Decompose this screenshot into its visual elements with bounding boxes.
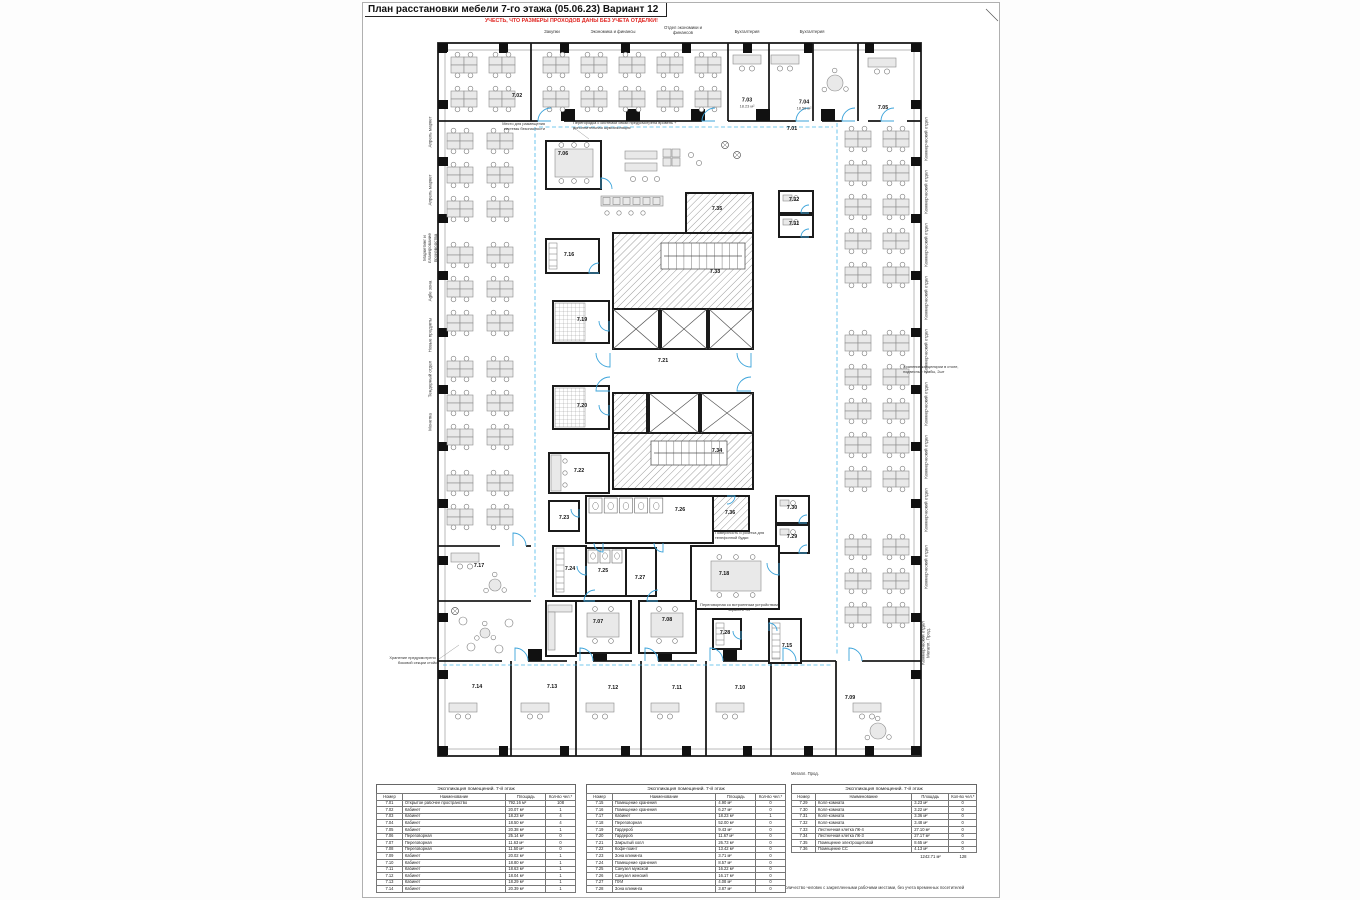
room-label: 7.09	[845, 695, 855, 701]
table-cell: 7.30	[792, 807, 816, 814]
footnote: *Указано количество человек с закрепленн…	[765, 885, 993, 890]
table-cell: Санузел мужской	[612, 866, 715, 873]
room-label: 7.32	[789, 197, 799, 203]
table-row: 7.17Кабинет18.23 м²1	[587, 813, 786, 820]
room-label: 7.29	[787, 534, 797, 540]
table-cell: 0	[756, 820, 786, 827]
drawing-title: План расстановки мебели 7-го этажа (05.0…	[365, 3, 667, 17]
room-label: 7.15	[782, 643, 792, 649]
column-header: Кол-во чел.*	[546, 794, 576, 801]
table-cell: 0	[756, 853, 786, 860]
floor-plan-drawing	[363, 3, 999, 897]
table-cell: 7.32	[792, 820, 816, 827]
table-cell: Помещение хранения	[612, 800, 715, 807]
table-row: 7.36Помещение СС4.13 м²0	[792, 846, 977, 853]
table-row: 7.11Кабинет18.63 м²1	[377, 866, 576, 873]
table-cell: 7.04	[377, 820, 403, 827]
table-title: Экспликация помещений. 7-й этаж	[791, 784, 977, 793]
table-cell: 1	[546, 826, 576, 833]
table-cell: Кабинет	[402, 820, 505, 827]
table-cell: 0	[756, 859, 786, 866]
table-cell: 25.14 м²	[506, 833, 546, 840]
table-cell: 7.36	[792, 846, 816, 853]
dept-label-right: Коммерческий отдел	[923, 435, 928, 478]
table-cell: 13.42 м²	[716, 846, 756, 853]
table-cell: 0	[756, 866, 786, 873]
table-row: 7.21Закрытый холл26.73 м²0	[587, 840, 786, 847]
table-cell: Санузел женский	[612, 873, 715, 880]
table-title: Экспликация помещений. 7-й этаж	[376, 784, 576, 793]
dept-label-left: Новые продукты	[427, 318, 432, 353]
table-row: 7.13Кабинет18.29 м²1	[377, 879, 576, 886]
room-label: 7.14	[472, 684, 482, 690]
explication-table: НомерНаименованиеПлощадьКол-во чел.*7.01…	[376, 793, 576, 893]
table-row: 7.24Помещение хранения8.57 м²0	[587, 859, 786, 866]
dept-label-left: Тендерный отдел	[427, 361, 432, 398]
table-cell: 7.13	[377, 879, 403, 886]
table-cell: Переговорная	[402, 840, 505, 847]
table-cell: 11.67 м²	[716, 833, 756, 840]
table-cell: 1	[546, 859, 576, 866]
plan-annotation: Хранение канцелярии в столе, подвесные т…	[903, 365, 985, 375]
dept-label-right: Коммерческий отдел	[923, 223, 928, 266]
dept-label-top: Бухгалтерия	[712, 29, 782, 34]
table-cell: 18.29 м²	[506, 879, 546, 886]
table-cell: 0	[756, 800, 786, 807]
column-header: Наименование	[402, 794, 505, 801]
plan-annotation: Место для размещения системы безопасност…	[487, 122, 545, 132]
table-cell: 7.06	[377, 833, 403, 840]
table-cell: Кабинет	[402, 879, 505, 886]
table-cell: 7.14	[377, 886, 403, 893]
plan-annotation: Переговорная со встроенным устройством э…	[699, 603, 779, 613]
core-rooms	[546, 141, 813, 663]
table-cell: 7.07	[377, 840, 403, 847]
table-cell: 20.38 м²	[506, 826, 546, 833]
table-row: 7.27ПУИ4.08 м²0	[587, 879, 786, 886]
table-cell: 7.10	[377, 859, 403, 866]
table-cell: Помещение электрощитовой	[816, 840, 912, 847]
table-row: 7.15Помещение хранения4.90 м²0	[587, 800, 786, 807]
plan-annotation: Перегородка с системой связи предусмотре…	[573, 121, 695, 131]
table-cell: 7.05	[377, 826, 403, 833]
dept-label-right: Коммерческий отдел	[923, 545, 928, 588]
column-header: Номер	[377, 794, 403, 801]
table-cell: 108	[546, 800, 576, 807]
table-cell: Кабинет	[402, 826, 505, 833]
room-label: 7.12	[608, 685, 618, 691]
table-cell: 0	[546, 833, 576, 840]
table-cell: 20.02 м²	[506, 853, 546, 860]
table-cell: 1	[546, 866, 576, 873]
table-cell: Колл-комната	[816, 813, 912, 820]
explication-table-2: Экспликация помещений. 7-й этажНомерНаим…	[586, 784, 786, 893]
table-totals: 1242.71 м²128	[791, 854, 977, 859]
table-row: 7.12Кабинет18.04 м²1	[377, 873, 576, 880]
room-label: 7.24	[565, 566, 575, 572]
table-cell: Гардероб	[612, 826, 715, 833]
table-cell: 0	[756, 879, 786, 886]
table-cell: ПУИ	[612, 879, 715, 886]
room-area-label: 18.23 м²	[740, 104, 755, 109]
room-label: 7.25	[598, 568, 608, 574]
table-cell: 27.10 м²	[912, 826, 949, 833]
table-cell: Переговорная	[612, 820, 715, 827]
table-row: 7.07Переговорная11.63 м²0	[377, 840, 576, 847]
table-cell: Кабинет	[402, 866, 505, 873]
table-row: 7.08Переговорная11.50 м²0	[377, 846, 576, 853]
table-cell: 7.33	[792, 826, 816, 833]
table-cell: 16.22 м²	[716, 866, 756, 873]
table-cell: 7.28	[587, 886, 613, 893]
table-cell: 0	[949, 807, 977, 814]
room-label: 7.18	[719, 571, 729, 577]
column-header: Кол-во чел.*	[949, 794, 977, 801]
table-cell: 0	[949, 840, 977, 847]
table-cell: 0	[756, 846, 786, 853]
dept-label-top: Бухгалтерия	[777, 29, 847, 34]
table-cell: 18.50 м²	[506, 820, 546, 827]
table-header-row: НомерНаименованиеПлощадьКол-во чел.*	[587, 794, 786, 801]
table-cell: Кабинет	[402, 807, 505, 814]
plan-annotation: Хранение предусмотрено в боковой секции …	[375, 656, 439, 666]
table-row: 7.20Гардероб11.67 м²0	[587, 833, 786, 840]
table-cell: 7.20	[587, 833, 613, 840]
room-label: 7.20	[577, 403, 587, 409]
table-cell: 3.48 м²	[912, 820, 949, 827]
table-cell: 3.23 м²	[912, 800, 949, 807]
table-row: 7.34Лестничная клетка ЛК-327.17 м²0	[792, 833, 977, 840]
table-row: 7.32Колл-комната3.48 м²0	[792, 820, 977, 827]
table-cell: 0	[756, 833, 786, 840]
table-cell: 8.65 м²	[912, 840, 949, 847]
table-cell: Кабинет	[402, 873, 505, 880]
table-row: 7.35Помещение электрощитовой8.65 м²0	[792, 840, 977, 847]
table-row: 7.05Кабинет20.38 м²1	[377, 826, 576, 833]
table-header-row: НомерНаименованиеПлощадьКол-во чел.*	[792, 794, 977, 801]
table-row: 7.29Колл-комната3.23 м²0	[792, 800, 977, 807]
dept-label-left: Agile зона	[427, 281, 432, 302]
room-label: 7.05	[878, 105, 888, 111]
table-row: 7.16Помещение хранения6.27 м²0	[587, 807, 786, 814]
room-label: 7.13	[547, 684, 557, 690]
dept-label-right: Коммерческий отдел Мегапл. Прод.	[921, 621, 932, 664]
room-label: 7.22	[574, 468, 584, 474]
table-cell: 20.39 м²	[506, 886, 546, 893]
misc-label: Мегапл. Прод.	[791, 771, 819, 776]
room-label: 7.33	[710, 269, 720, 275]
table-cell: 16.17 м²	[716, 873, 756, 880]
table-cell: 7.18	[587, 820, 613, 827]
table-cell: 792.16 м²	[506, 800, 546, 807]
dept-label-top: Экономика и финансы	[578, 29, 648, 34]
table-cell: 0	[546, 846, 576, 853]
room-label: 7.36	[725, 510, 735, 516]
table-cell: 7.27	[587, 879, 613, 886]
table-cell: 11.63 м²	[506, 840, 546, 847]
table-cell: 1	[546, 873, 576, 880]
room-label: 7.19	[577, 317, 587, 323]
table-cell: 3.71 м²	[716, 853, 756, 860]
room-label: 7.31	[789, 221, 799, 227]
table-cell: 3.36 м²	[912, 813, 949, 820]
table-row: 7.33Лестничная клетка ЛК-427.10 м²0	[792, 826, 977, 833]
dept-label-left: Апрель маркет	[427, 116, 432, 147]
table-cell: 0	[546, 840, 576, 847]
room-label: 7.0418.50 м²	[797, 100, 812, 111]
table-cell: 7.31	[792, 813, 816, 820]
column-header: Площадь	[506, 794, 546, 801]
table-cell: 7.03	[377, 813, 403, 820]
table-cell: Помещение хранения	[612, 807, 715, 814]
table-row: 7.18Переговорная52.00 м²0	[587, 820, 786, 827]
table-cell: 4.13 м²	[912, 846, 949, 853]
table-cell: Зона клининга	[612, 886, 715, 893]
table-row: 7.10Кабинет18.80 м²1	[377, 859, 576, 866]
dept-label-right: Коммерческий отдел	[923, 170, 928, 213]
table-row: 7.14Кабинет20.39 м²1	[377, 886, 576, 893]
table-cell: 7.19	[587, 826, 613, 833]
table-row: 7.09Кабинет20.02 м²1	[377, 853, 576, 860]
table-cell: 4	[546, 813, 576, 820]
explication-table: НомерНаименованиеПлощадьКол-во чел.*7.29…	[791, 793, 977, 853]
total-people: 128	[949, 854, 977, 859]
table-cell: Гардероб	[612, 833, 715, 840]
table-cell: 18.23 м²	[506, 813, 546, 820]
room-label: 7.16	[564, 252, 574, 258]
warning-note: УЧЕСТЬ, ЧТО РАЗМЕРЫ ПРОХОДОВ ДАНЫ БЕЗ УЧ…	[485, 18, 658, 24]
table-cell: 0	[756, 807, 786, 814]
room-area-label: 18.50 м²	[797, 106, 812, 111]
table-cell: Колл-комната	[816, 800, 912, 807]
column-header: Номер	[792, 794, 816, 801]
table-cell: 7.26	[587, 873, 613, 880]
table-row: 7.23Зона клининга3.71 м²0	[587, 853, 786, 860]
table-row: 7.02Кабинет20.07 м²1	[377, 807, 576, 814]
table-cell: 18.23 м²	[716, 813, 756, 820]
table-cell: 26.73 м²	[716, 840, 756, 847]
table-cell: 7.34	[792, 833, 816, 840]
table-cell: 1	[546, 853, 576, 860]
table-cell: 7.16	[587, 807, 613, 814]
table-cell: 7.29	[792, 800, 816, 807]
table-cell: 7.17	[587, 813, 613, 820]
column-header: Номер	[587, 794, 613, 801]
table-cell: 3.87 м²	[716, 886, 756, 893]
table-cell: 7.24	[587, 859, 613, 866]
table-row: 7.01Открытое рабочее пространство792.16 …	[377, 800, 576, 807]
dept-label-right: Коммерческий отдел	[923, 488, 928, 531]
table-cell: Зона клининга	[612, 853, 715, 860]
table-cell: Колл-комната	[816, 807, 912, 814]
table-cell: 0	[949, 833, 977, 840]
table-cell: Кабинет	[402, 853, 505, 860]
table-cell: 7.02	[377, 807, 403, 814]
table-cell: 0	[949, 813, 977, 820]
dept-label-left: Маркетинг и планирование производства	[422, 233, 438, 263]
room-label: 7.21	[658, 358, 668, 364]
room-label: 7.02	[512, 93, 522, 99]
table-row: 7.04Кабинет18.50 м²4	[377, 820, 576, 827]
dept-label-left: Монетка	[427, 413, 432, 431]
table-cell: 7.15	[587, 800, 613, 807]
table-cell: 1	[546, 807, 576, 814]
room-label: 7.08	[662, 617, 672, 623]
table-row: 7.26Санузел женский16.17 м²0	[587, 873, 786, 880]
table-row: 7.22Кофе-поинт13.42 м²0	[587, 846, 786, 853]
explication-table: НомерНаименованиеПлощадьКол-во чел.*7.15…	[586, 793, 786, 893]
column-header: Площадь	[716, 794, 756, 801]
table-cell: Кабинет	[612, 813, 715, 820]
table-cell: 0	[756, 886, 786, 893]
room-label: 7.34	[712, 448, 722, 454]
column-header: Кол-во чел.*	[756, 794, 786, 801]
total-area: 1242.71 м²	[912, 854, 949, 859]
table-cell: 0	[949, 800, 977, 807]
table-cell: 20.07 м²	[506, 807, 546, 814]
table-cell: Лестничная клетка ЛК-4	[816, 826, 912, 833]
column-header: Площадь	[912, 794, 949, 801]
table-cell: 18.04 м²	[506, 873, 546, 880]
table-cell: Открытое рабочее пространство	[402, 800, 505, 807]
table-cell: 0	[949, 826, 977, 833]
table-cell: 9.43 м²	[716, 826, 756, 833]
dept-label-right: Коммерческий отдел	[923, 117, 928, 160]
table-cell: 7.35	[792, 840, 816, 847]
table-title: Экспликация помещений. 7-й этаж	[586, 784, 786, 793]
table-row: 7.06Переговорная25.14 м²0	[377, 833, 576, 840]
dept-label-top: Закупки	[517, 29, 587, 34]
table-cell: 52.00 м²	[716, 820, 756, 827]
table-cell: 7.11	[377, 866, 403, 873]
column-header: Наименование	[816, 794, 912, 801]
table-cell: 4.90 м²	[716, 800, 756, 807]
table-row: 7.30Колл-комната3.22 м²0	[792, 807, 977, 814]
table-cell: 7.23	[587, 853, 613, 860]
table-cell: 7.22	[587, 846, 613, 853]
room-label: 7.27	[635, 575, 645, 581]
room-label: 7.01	[787, 126, 797, 132]
room-label: 7.06	[558, 151, 568, 157]
table-cell: 0	[756, 840, 786, 847]
table-cell: Закрытый холл	[612, 840, 715, 847]
explication-table-3: Экспликация помещений. 7-й этажНомерНаим…	[791, 784, 977, 859]
room-label: 7.10	[735, 685, 745, 691]
dept-label-right: Коммерческий отдел	[923, 276, 928, 319]
table-cell: Кабинет	[402, 859, 505, 866]
room-label: 7.0318.23 м²	[740, 98, 755, 109]
table-cell: 0	[756, 873, 786, 880]
table-row: 7.31Колл-комната3.36 м²0	[792, 813, 977, 820]
table-row: 7.19Гардероб9.43 м²0	[587, 826, 786, 833]
table-cell: Кабинет	[402, 886, 505, 893]
table-cell: Переговорная	[402, 833, 505, 840]
room-label: 7.17	[474, 563, 484, 569]
table-cell: 0	[949, 820, 977, 827]
table-row: 7.28Зона клининга3.87 м²0	[587, 886, 786, 893]
room-label: 7.23	[559, 515, 569, 521]
table-cell: 6.27 м²	[716, 807, 756, 814]
table-cell: Помещение хранения	[612, 859, 715, 866]
table-cell: 8.57 м²	[716, 859, 756, 866]
dept-label-top: Отдел экономики и финансов	[648, 25, 718, 36]
table-cell: 18.80 м²	[506, 859, 546, 866]
table-cell: Кабинет	[402, 813, 505, 820]
table-cell: Кофе-поинт	[612, 846, 715, 853]
table-cell: 7.21	[587, 840, 613, 847]
room-label: 7.26	[675, 507, 685, 513]
table-cell: 0	[756, 826, 786, 833]
table-cell: 4.08 м²	[716, 879, 756, 886]
table-cell: 7.25	[587, 866, 613, 873]
table-cell: 3.22 м²	[912, 807, 949, 814]
table-cell: 27.17 м²	[912, 833, 949, 840]
table-cell: 11.50 м²	[506, 846, 546, 853]
table-cell: 7.01	[377, 800, 403, 807]
dept-label-right: Коммерческий отдел	[923, 382, 928, 425]
table-cell: Колл-комната	[816, 820, 912, 827]
table-row: 7.03Кабинет18.23 м²4	[377, 813, 576, 820]
drawing-sheet: План расстановки мебели 7-го этажа (05.0…	[362, 2, 1000, 898]
table-cell: 1	[546, 886, 576, 893]
table-cell: 0	[949, 846, 977, 853]
table-cell: 1	[546, 879, 576, 886]
table-cell: 4	[546, 820, 576, 827]
room-label: 7.28	[720, 630, 730, 636]
table-header-row: НомерНаименованиеПлощадьКол-во чел.*	[377, 794, 576, 801]
page-background: План расстановки мебели 7-го этажа (05.0…	[0, 0, 1360, 900]
plan-annotation: Поверхность и розетка для телефонной буд…	[715, 531, 773, 541]
table-cell: Помещение СС	[816, 846, 912, 853]
table-cell: Лестничная клетка ЛК-3	[816, 833, 912, 840]
explication-table-1: Экспликация помещений. 7-й этажНомерНаим…	[376, 784, 576, 893]
table-cell: 7.09	[377, 853, 403, 860]
table-cell: 1	[756, 813, 786, 820]
room-label: 7.30	[787, 505, 797, 511]
room-label: 7.35	[712, 206, 722, 212]
table-row: 7.25Санузел мужской16.22 м²0	[587, 866, 786, 873]
room-label: 7.11	[672, 685, 682, 691]
table-cell: 18.63 м²	[506, 866, 546, 873]
dept-label-left: Апрель маркет	[427, 174, 432, 205]
table-cell: 7.08	[377, 846, 403, 853]
column-header: Наименование	[612, 794, 715, 801]
room-label: 7.07	[593, 619, 603, 625]
table-cell: Переговорная	[402, 846, 505, 853]
table-cell: 7.12	[377, 873, 403, 880]
